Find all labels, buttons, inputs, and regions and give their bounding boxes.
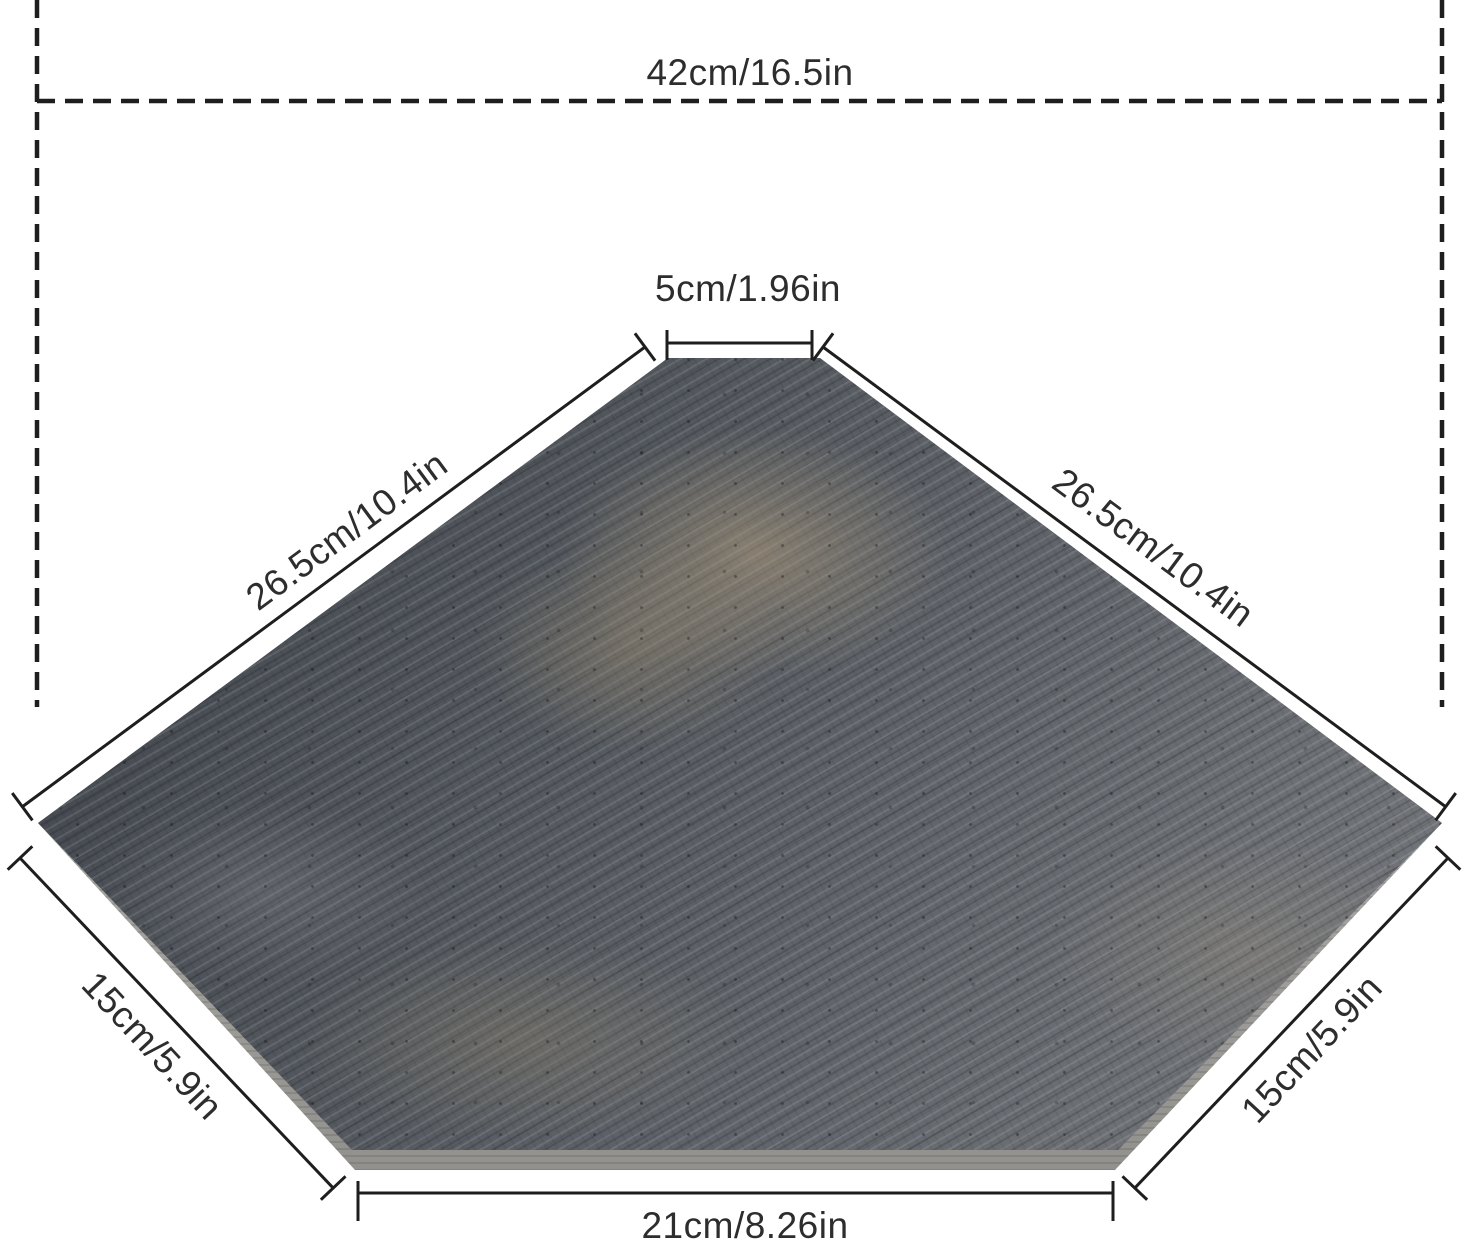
dimension-line-right-diagonal — [813, 333, 1456, 820]
dimension-tick — [635, 333, 655, 360]
dimension-diagram: 42cm/16.5in 5cm/1.96in 26.5cm/10.4in 26.… — [0, 0, 1468, 1247]
dimension-label-bottom-edge: 21cm/8.26in — [641, 1205, 848, 1247]
dimension-line — [1135, 858, 1448, 1188]
dimension-line — [22, 347, 645, 807]
dimension-tick — [813, 333, 833, 360]
dimension-tick — [1436, 793, 1456, 820]
dimension-line-left-side — [8, 846, 346, 1199]
dimension-line-left-diagonal — [12, 333, 655, 820]
dimension-line — [823, 347, 1446, 807]
dimension-annotations — [0, 0, 1468, 1247]
dimension-label-top-edge: 5cm/1.96in — [655, 268, 841, 310]
dimension-line — [20, 858, 333, 1188]
dimension-tick — [12, 793, 32, 820]
dimension-label-top-width: 42cm/16.5in — [646, 52, 853, 94]
dimension-line-right-side — [1122, 846, 1460, 1199]
dimension-line-top-edge — [667, 330, 812, 360]
